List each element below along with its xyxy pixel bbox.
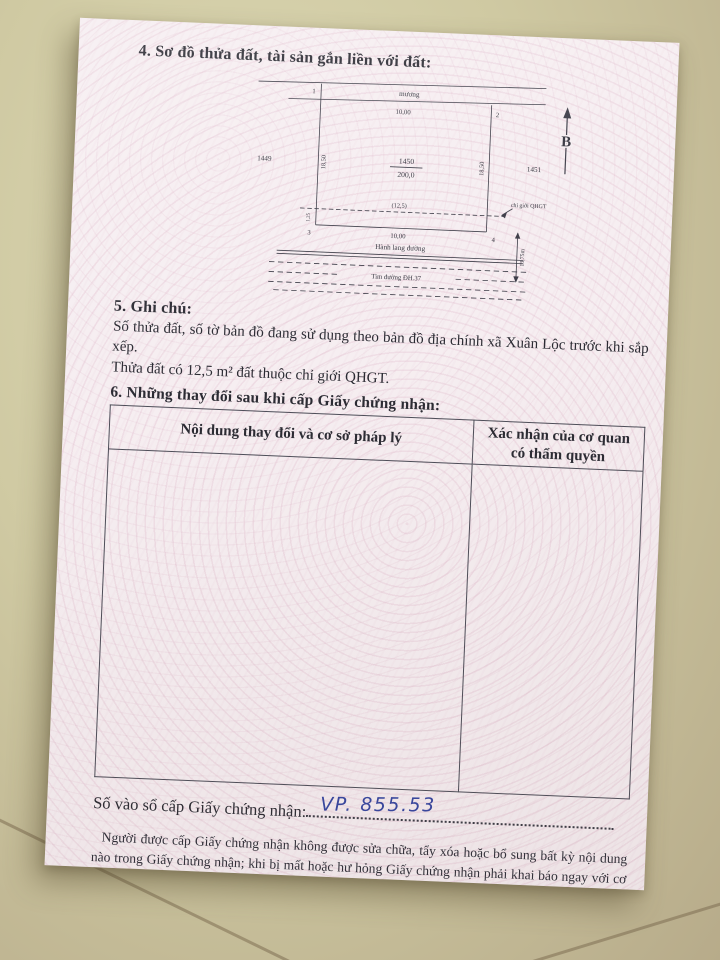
north-label: B xyxy=(561,134,572,150)
corner-2-label: 2 xyxy=(496,112,500,119)
registry-number-handwritten: VP. 855.53 xyxy=(321,793,437,816)
north-arrow: B xyxy=(552,104,581,179)
page-content: 4. Sơ đồ thửa đất, tài sản gắn liền với … xyxy=(45,18,680,890)
changes-table-col2-cell xyxy=(458,464,643,799)
parcel-left-label: 1449 xyxy=(257,154,272,163)
corner-3-label: 3 xyxy=(307,229,311,236)
changes-table-col1-cell xyxy=(95,449,472,792)
changes-table: Nội dung thay đổi và cơ sở pháp lý Xác n… xyxy=(94,405,645,800)
plot-number-label: 1450 xyxy=(399,156,415,166)
qhgt-line-label: chỉ giới QHGT xyxy=(511,203,547,210)
parcel-right-label: 1451 xyxy=(527,166,542,175)
centerline-label: Tim đường ĐH.37 xyxy=(371,273,422,282)
top-width-label: 10,00 xyxy=(395,109,411,117)
canal-label: mương xyxy=(399,90,420,99)
plot-area-label: 200,0 xyxy=(397,170,415,180)
corridor-label: Hành lang đường xyxy=(375,243,426,253)
bottom-width-label: 10,00 xyxy=(390,233,406,241)
road-half-width-label: 13,75m xyxy=(520,248,527,266)
left-length-label: 18,50 xyxy=(320,155,328,169)
certificate-page: 4. Sơ đồ thửa đất, tài sản gắn liền với … xyxy=(45,18,680,890)
land-plot-diagram: mương 1 2 3 4 10,00 18,50 18,50 1449 145… xyxy=(114,64,659,318)
registry-label: Số vào sổ cấp Giấy chứng nhận: xyxy=(93,793,307,821)
qhgt-width-label: (12,5) xyxy=(391,202,406,210)
registry-dotted-line: VP. 855.53 xyxy=(306,815,614,830)
changes-table-col2-header: Xác nhận của cơ quan có thẩm quyền xyxy=(472,420,645,471)
floor-tile-seam xyxy=(708,0,720,131)
right-length-label: 18,50 xyxy=(478,162,486,176)
footer-warning-text: Người được cấp Giấy chứng nhận không đượ… xyxy=(90,827,628,890)
corner-4-label: 4 xyxy=(491,237,495,244)
changes-table-empty-row xyxy=(95,449,643,799)
corner-1-label: 1 xyxy=(312,88,316,95)
registry-line: Số vào sổ cấp Giấy chứng nhận:VP. 855.53 xyxy=(93,793,629,835)
strip-depth-label: 1,25 xyxy=(306,212,311,221)
plot-sketch: mương 1 2 3 4 10,00 18,50 18,50 1449 145… xyxy=(223,68,574,306)
